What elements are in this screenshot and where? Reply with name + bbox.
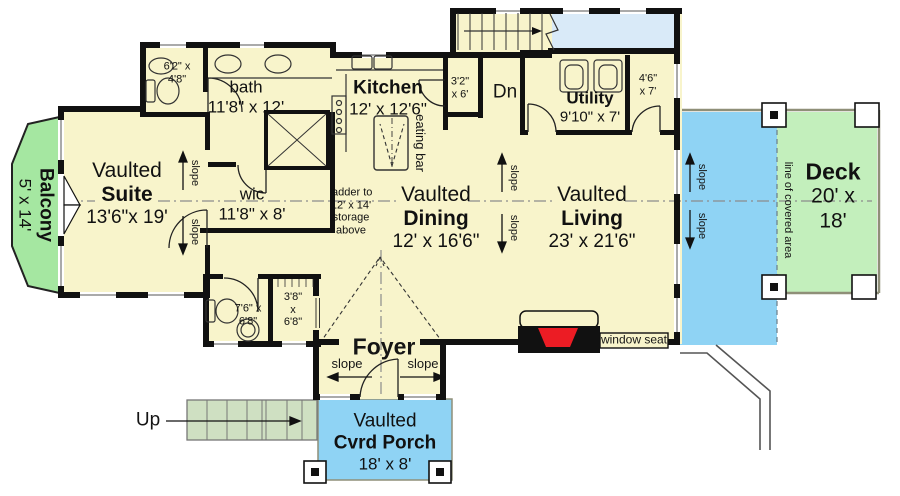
bath-label: bath 11'8" x 12' [208,77,284,116]
wic-name: wic [218,184,285,204]
suite-name: Suite [86,183,168,207]
deck-label: Deck 20' x 18' [800,159,867,234]
kitchen-label: Kitchen 12' x 12'6" [349,77,427,118]
living-name: Living [549,207,636,231]
powder-lower-dims-1: 7'6" x [235,302,262,315]
bath-dims: 11'8" x 12' [208,97,284,117]
suite-dims: 13'6"x 19' [86,207,168,229]
up-label: Up [136,411,160,432]
dining-name: Dining [393,207,480,231]
line-of-covered-area-label: line of covered area [781,162,793,259]
powder-upper-dims-2: 4'8" [164,73,191,86]
utility-closet-dims-2: x 7' [639,85,657,98]
powder-lower-label: 7'6" x 6'8" [235,302,262,327]
dining-prefix: Vaulted [393,183,480,207]
porch-prefix: Vaulted [334,410,436,432]
window-seat-label: window seat [601,334,667,347]
living-prefix: Vaulted [549,183,636,207]
porch-name: Cvrd Porch [334,432,436,454]
porch-label: Vaulted Cvrd Porch 18' x 8' [334,410,436,473]
ladder-note: ladder to 12' x 14' storage above [330,187,373,238]
pantry-dims-1: 3'2" [451,75,469,88]
eating-bar-label: eating bar [413,114,427,172]
porch-dims: 18' x 8' [334,454,436,474]
utility-closet-label: 4'6" x 7' [639,72,657,97]
dn-label: Dn [493,83,517,104]
ladder-line-3: storage [330,212,373,225]
powder-upper-label: 6'2" x 4'8" [164,60,191,85]
powder-upper-dims-1: 6'2" x [164,60,191,73]
balcony-dims: 5' x 14' [15,168,35,242]
suite-prefix: Vaulted [86,159,168,183]
utility-label: Utility 9'10" x 7' [560,89,620,126]
ladder-line-4: above [330,225,373,238]
closet-lower-dims-2: x [284,304,302,317]
powder-lower-dims-2: 6'8" [235,315,262,328]
floor-plan: Balcony 5' x 14' Vaulted Suite 13'6"x 19… [0,0,900,496]
pantry-dims-2: x 6' [451,88,469,101]
slope-label-foyer-right: slope [407,357,438,371]
slope-label-mid-up: slope [507,165,519,191]
dining-label: Vaulted Dining 12' x 16'6" [393,183,480,253]
closet-lower-dims-1: 3'8" [284,291,302,304]
fireplace [518,311,600,353]
balcony-label: Balcony 5' x 14' [15,168,56,242]
wic-label: wic 11'8" x 8' [218,184,285,223]
deck-stair-railing [680,345,770,450]
utility-name: Utility [560,89,620,109]
slope-label-foyer-left: slope [331,357,362,371]
ladder-line-1: ladder to [330,187,373,200]
dining-dims: 12' x 16'6" [393,231,480,253]
kitchen-name: Kitchen [349,77,427,99]
deck-name: Deck [800,159,867,185]
slope-label-mid-down: slope [507,215,519,241]
slope-label-suite-down: slope [188,219,200,245]
slope-label-suite-up: slope [188,160,200,186]
ladder-line-2: 12' x 14' [330,199,373,212]
deck-dims: 20' x 18' [800,185,867,233]
living-dims: 23' x 21'6" [549,231,636,253]
closet-lower-dims-3: 6'8" [284,316,302,329]
suite-label: Vaulted Suite 13'6"x 19' [86,159,168,229]
pantry-label: 3'2" x 6' [451,75,469,100]
slope-label-deck-up: slope [695,164,707,190]
utility-dims: 9'10" x 7' [560,108,620,125]
stair-landing [552,13,674,50]
balcony-name: Balcony [35,168,57,242]
closet-lower-label: 3'8" x 6'8" [284,291,302,329]
slope-label-deck-down: slope [695,213,707,239]
living-label: Vaulted Living 23' x 21'6" [549,183,636,253]
wic-dims: 11'8" x 8' [218,204,285,224]
bath-name: bath [208,77,284,97]
utility-closet-dims-1: 4'6" [639,72,657,85]
